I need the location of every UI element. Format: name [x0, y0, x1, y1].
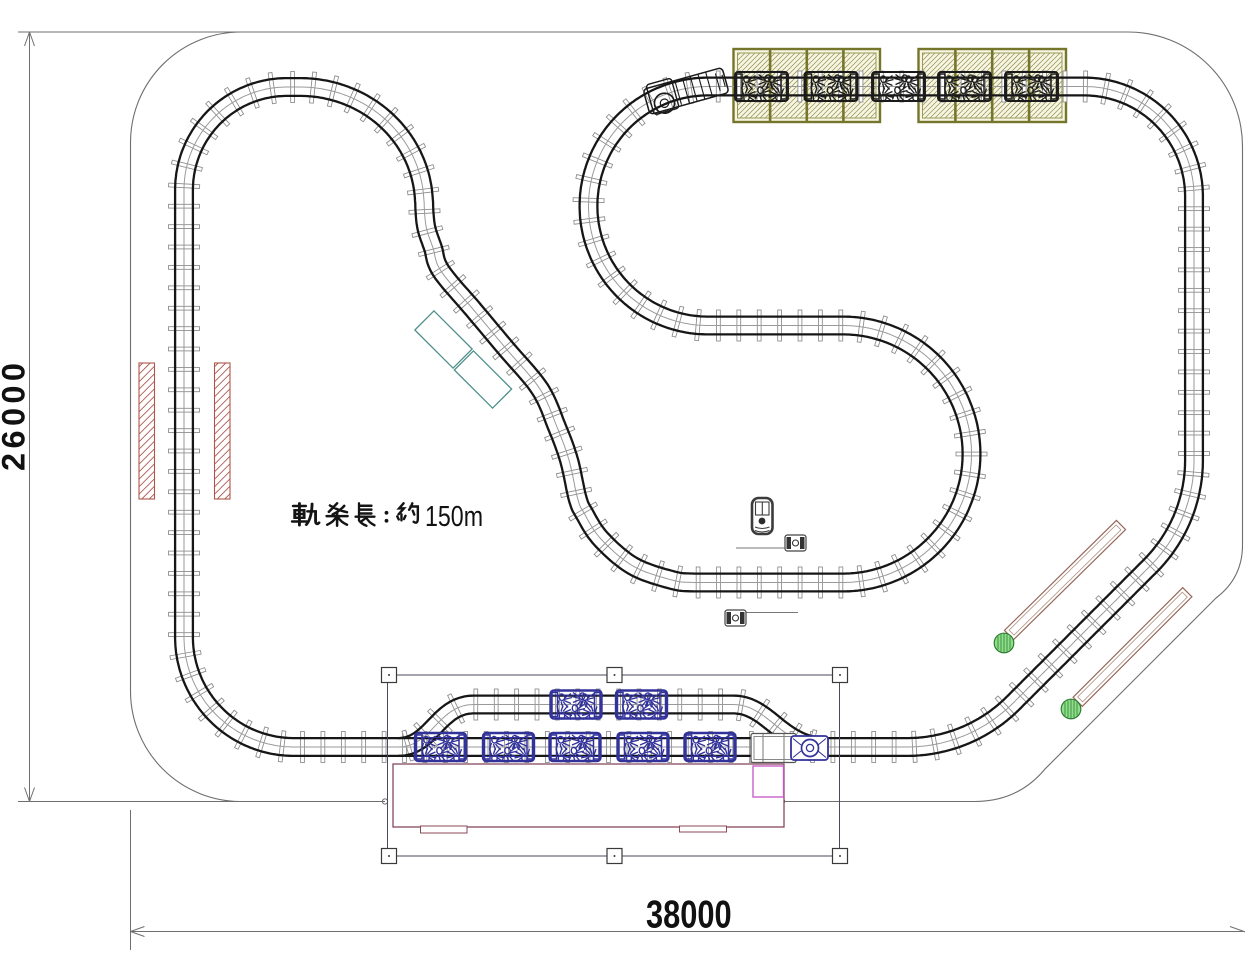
svg-text:38000: 38000 [646, 893, 732, 936]
svg-text:26000: 26000 [0, 359, 32, 471]
svg-text:150m: 150m [425, 499, 483, 532]
